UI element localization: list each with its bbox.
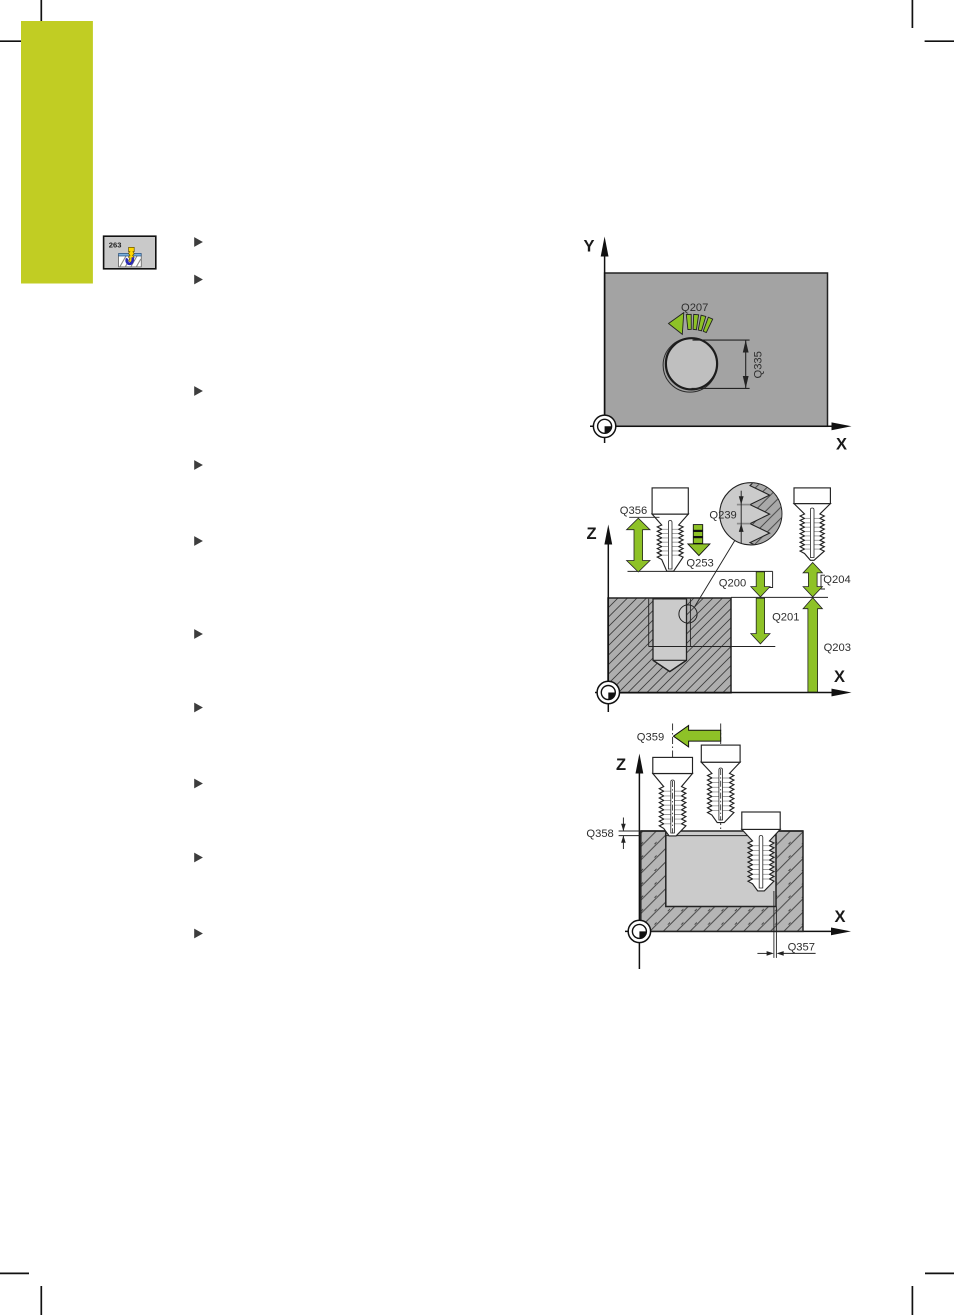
svg-text:X: X: [836, 436, 847, 454]
svg-text:Q207: Q207: [681, 302, 708, 314]
svg-text:Q253: Q253: [686, 557, 713, 569]
svg-text:Q335: Q335: [753, 351, 765, 378]
svg-text:263: 263: [109, 240, 122, 249]
svg-text:Q239: Q239: [709, 510, 736, 522]
svg-text:Q204: Q204: [823, 574, 850, 586]
svg-text:Y: Y: [584, 238, 595, 256]
svg-text:Q359: Q359: [637, 731, 664, 743]
svg-text:X: X: [835, 908, 846, 926]
svg-text:Q201: Q201: [772, 611, 799, 623]
svg-text:X: X: [834, 668, 845, 686]
svg-text:Q200: Q200: [719, 577, 746, 589]
svg-text:Q356: Q356: [620, 505, 647, 517]
svg-text:Z: Z: [616, 756, 626, 774]
svg-text:Q203: Q203: [824, 642, 851, 654]
svg-text:Q357: Q357: [788, 942, 815, 954]
svg-text:Z: Z: [587, 525, 597, 543]
svg-text:Q358: Q358: [586, 828, 613, 840]
